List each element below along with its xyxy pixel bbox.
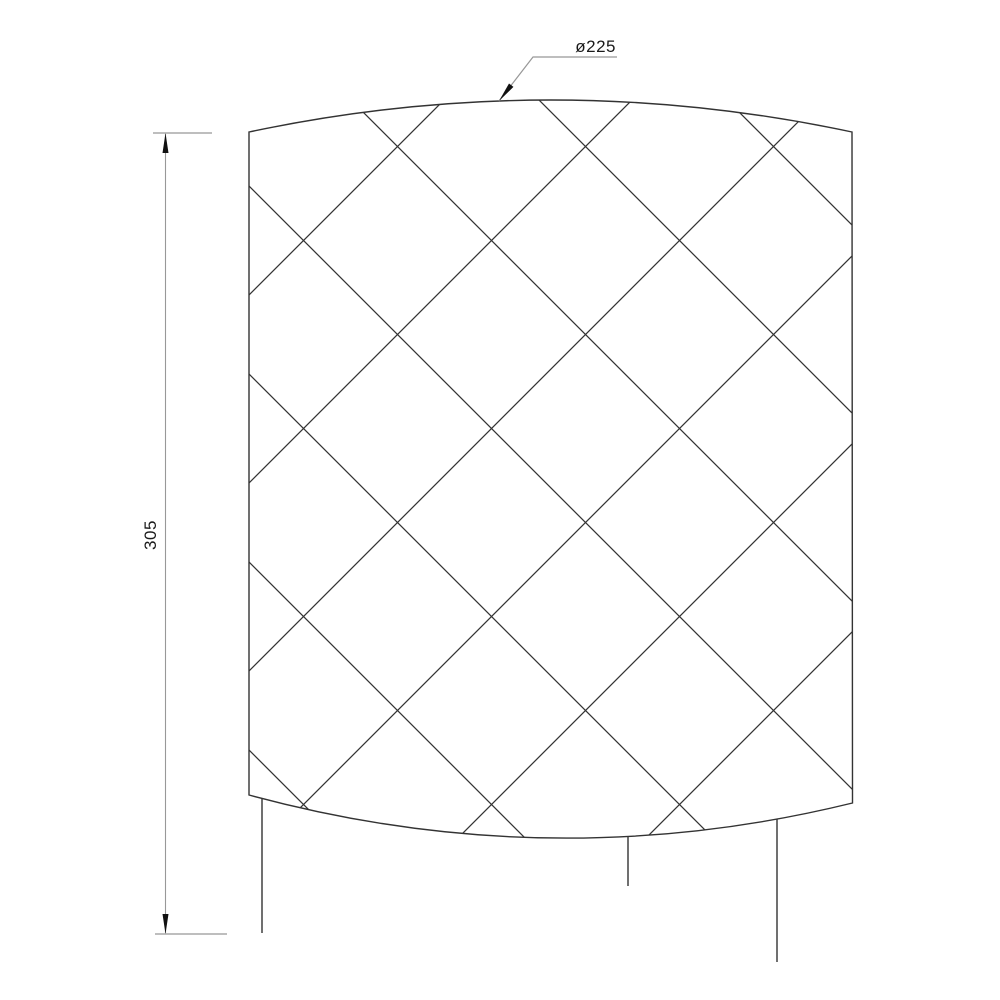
lattice-line-backslash <box>0 0 599 1000</box>
technical-drawing: 305 ø225 <box>0 0 1000 1000</box>
diameter-label: ø225 <box>575 37 616 56</box>
lattice-line-backslash <box>251 0 1000 1000</box>
shade-outline <box>249 100 853 838</box>
lattice-line-slash <box>384 0 1000 1000</box>
arrow-up-icon <box>163 133 169 153</box>
leader-arrow-icon <box>499 83 513 101</box>
lattice-line-backslash <box>0 0 975 1000</box>
lattice-line-backslash <box>627 0 1000 1000</box>
lattice-line-backslash <box>63 0 1000 1000</box>
leader-line <box>499 57 617 101</box>
lattice-line-slash <box>0 0 732 1000</box>
height-dimension: 305 <box>141 133 227 934</box>
lattice-line-slash <box>196 0 1000 1000</box>
lattice-grid <box>0 0 1000 1000</box>
lattice-line-slash <box>0 0 920 1000</box>
drawing-canvas: 305 ø225 <box>0 0 1000 1000</box>
height-dimension-label: 305 <box>141 520 160 550</box>
diameter-leader: ø225 <box>499 37 617 101</box>
lattice-line-slash <box>0 0 544 1000</box>
lattice-line-backslash <box>439 0 1000 1000</box>
lattice-line-slash <box>8 0 1000 1000</box>
shade-legs <box>262 798 777 962</box>
arrow-down-icon <box>163 914 169 934</box>
